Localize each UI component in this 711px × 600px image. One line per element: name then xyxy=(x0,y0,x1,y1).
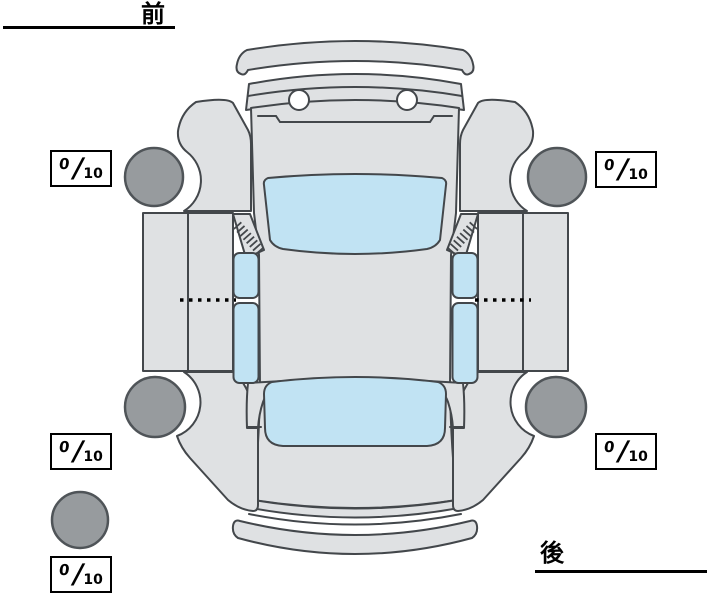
score-value: 0 xyxy=(58,157,70,172)
door-panel-left-inner xyxy=(188,213,233,371)
side-window-right-front xyxy=(453,253,478,298)
car-top-view xyxy=(0,0,711,600)
door-panel-left-outer xyxy=(143,213,188,371)
washer-nozzle-right xyxy=(397,90,417,110)
door-panel-right-outer xyxy=(523,213,568,371)
score-value: 0 xyxy=(58,563,70,578)
score-max: 10 xyxy=(628,168,647,182)
tire-front-right xyxy=(528,148,586,206)
washer-nozzle-left xyxy=(289,90,309,110)
rear-underline xyxy=(535,570,707,573)
tire-rear-left xyxy=(125,377,185,437)
rear-label: 後 xyxy=(540,541,564,565)
score-value: 0 xyxy=(58,440,70,455)
rear-bumper xyxy=(233,521,477,554)
score-max: 10 xyxy=(83,450,102,464)
tread-score-front-right[interactable]: 0/10 xyxy=(595,151,657,188)
fender-front-left xyxy=(178,100,251,211)
tread-score-rear-left[interactable]: 0/10 xyxy=(50,433,112,470)
score-max: 10 xyxy=(628,450,647,464)
windshield xyxy=(264,174,446,254)
tire-spare xyxy=(52,492,108,548)
tire-front-left xyxy=(125,148,183,206)
score-max: 10 xyxy=(83,167,102,181)
side-window-left-rear xyxy=(234,303,259,383)
tread-score-spare[interactable]: 0/10 xyxy=(50,556,112,593)
rear-label-text: 後 xyxy=(540,539,564,567)
quarter-panel-rear-left xyxy=(177,372,258,511)
score-value: 0 xyxy=(603,158,615,173)
front-underline xyxy=(3,26,175,29)
front-bumper xyxy=(237,41,474,75)
front-label-text: 前 xyxy=(141,0,165,28)
score-value: 0 xyxy=(603,440,615,455)
tread-score-rear-right[interactable]: 0/10 xyxy=(595,433,657,470)
door-panel-right-inner xyxy=(478,213,523,371)
tread-score-front-left[interactable]: 0/10 xyxy=(50,150,112,187)
score-max: 10 xyxy=(83,573,102,587)
front-label: 前 xyxy=(141,2,165,26)
rear-window xyxy=(264,377,446,446)
side-window-right-rear xyxy=(453,303,478,383)
vehicle-condition-diagram: 前 後 0/10 0/10 0/10 0/10 0/10 xyxy=(0,0,711,600)
tire-rear-right xyxy=(526,377,586,437)
fender-front-right xyxy=(460,100,533,211)
side-window-left-front xyxy=(234,253,259,298)
quarter-panel-rear-right xyxy=(453,372,534,511)
